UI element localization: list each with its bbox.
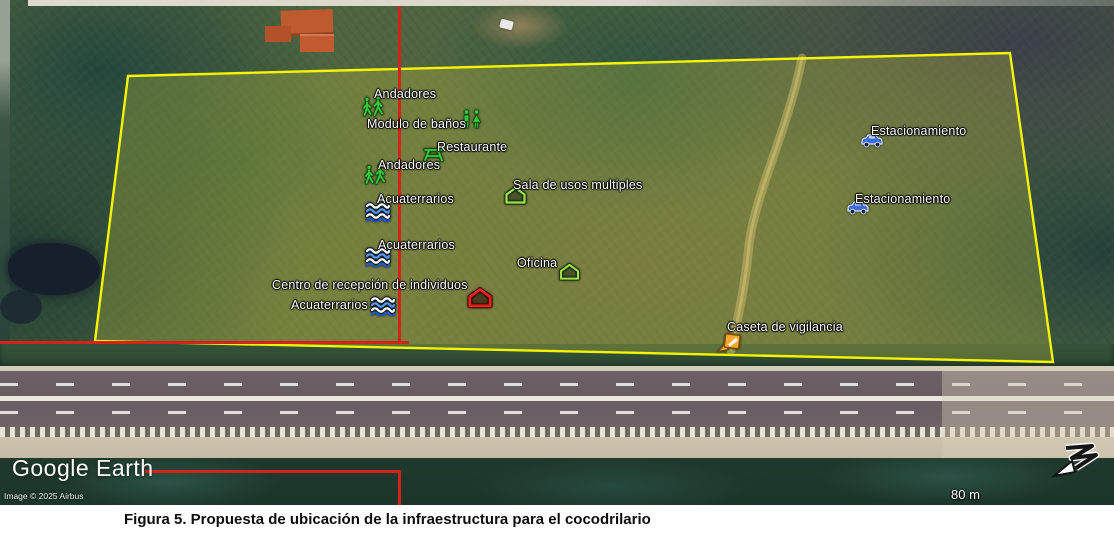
placemark-label[interactable]: Estacionamiento (871, 124, 966, 138)
figure-caption-bar: Figura 5. Propuesta de ubicación de la i… (0, 505, 1114, 541)
placemark-layer: AndadoresModulo de bañosRestauranteAndad… (0, 0, 1114, 505)
placemark-label[interactable]: Centro de recepción de individuos (272, 278, 468, 292)
waves-icon[interactable] (370, 296, 396, 316)
green-house-icon[interactable] (558, 263, 581, 281)
north-arrow-icon[interactable] (1046, 442, 1102, 480)
figure-caption: Figura 5. Propuesta de ubicación de la i… (124, 511, 651, 528)
placemark-label[interactable]: Modulo de baños (367, 117, 466, 131)
placemark-label[interactable]: Oficina (517, 256, 557, 270)
ranger-station-icon[interactable] (716, 332, 743, 353)
placemark-label[interactable]: Restaurante (437, 140, 507, 154)
scale-label: 80 m (951, 487, 980, 502)
page: { "caption": { "text": "Figura 5. Propue… (0, 0, 1114, 541)
placemark-label[interactable]: Estacionamiento (855, 192, 950, 206)
placemark-label[interactable]: Andadores (374, 87, 436, 101)
imagery-attribution: Image © 2025 Airbus (4, 491, 84, 501)
red-house-icon[interactable] (467, 287, 493, 309)
placemark-label[interactable]: Caseta de vigilancia (727, 320, 843, 334)
placemark-label[interactable]: Acuaterrarios (378, 238, 455, 252)
placemark-label[interactable]: Sala de usos multiples (513, 178, 642, 192)
satellite-map[interactable]: AndadoresModulo de bañosRestauranteAndad… (0, 0, 1114, 505)
placemark-label[interactable]: Acuaterrarios (377, 192, 454, 206)
google-earth-logo: Google Earth (12, 455, 154, 482)
placemark-label[interactable]: Andadores (378, 158, 440, 172)
placemark-label[interactable]: Acuaterrarios (291, 298, 368, 312)
